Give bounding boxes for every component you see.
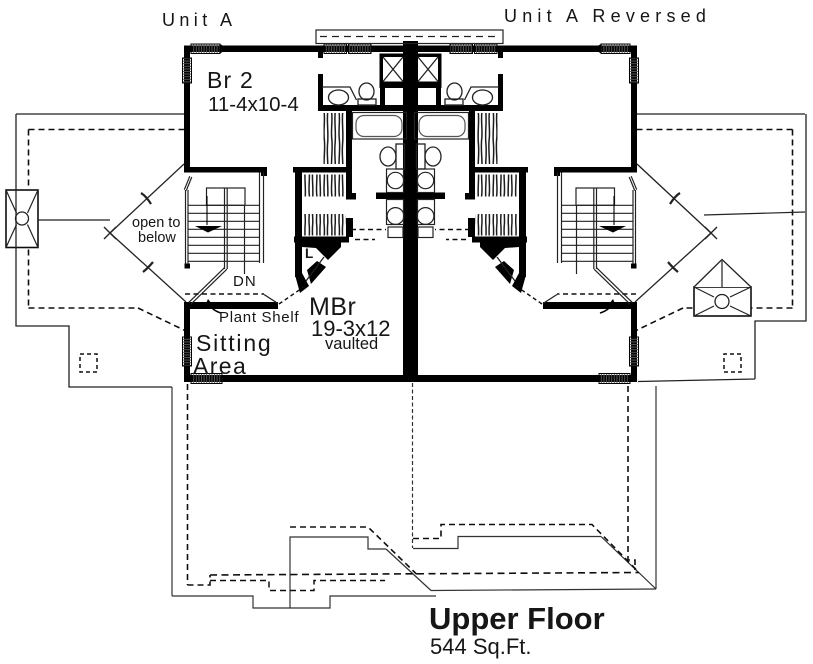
svg-text:Br 2: Br 2 [207, 67, 254, 93]
svg-text:Unit A: Unit A [162, 10, 236, 30]
svg-text:11-4x10-4: 11-4x10-4 [208, 93, 299, 116]
svg-text:Plant Shelf: Plant Shelf [219, 309, 299, 326]
svg-text:544 Sq.Ft.: 544 Sq.Ft. [430, 634, 532, 659]
svg-text:Unit A Reversed: Unit A Reversed [504, 6, 711, 26]
svg-text:open to: open to [132, 215, 180, 231]
svg-text:Area: Area [193, 353, 247, 379]
svg-text:vaulted: vaulted [325, 335, 378, 353]
svg-text:DN: DN [233, 273, 257, 290]
svg-text:Upper Floor: Upper Floor [429, 601, 605, 636]
svg-text:L: L [305, 246, 313, 261]
svg-text:below: below [138, 230, 176, 246]
